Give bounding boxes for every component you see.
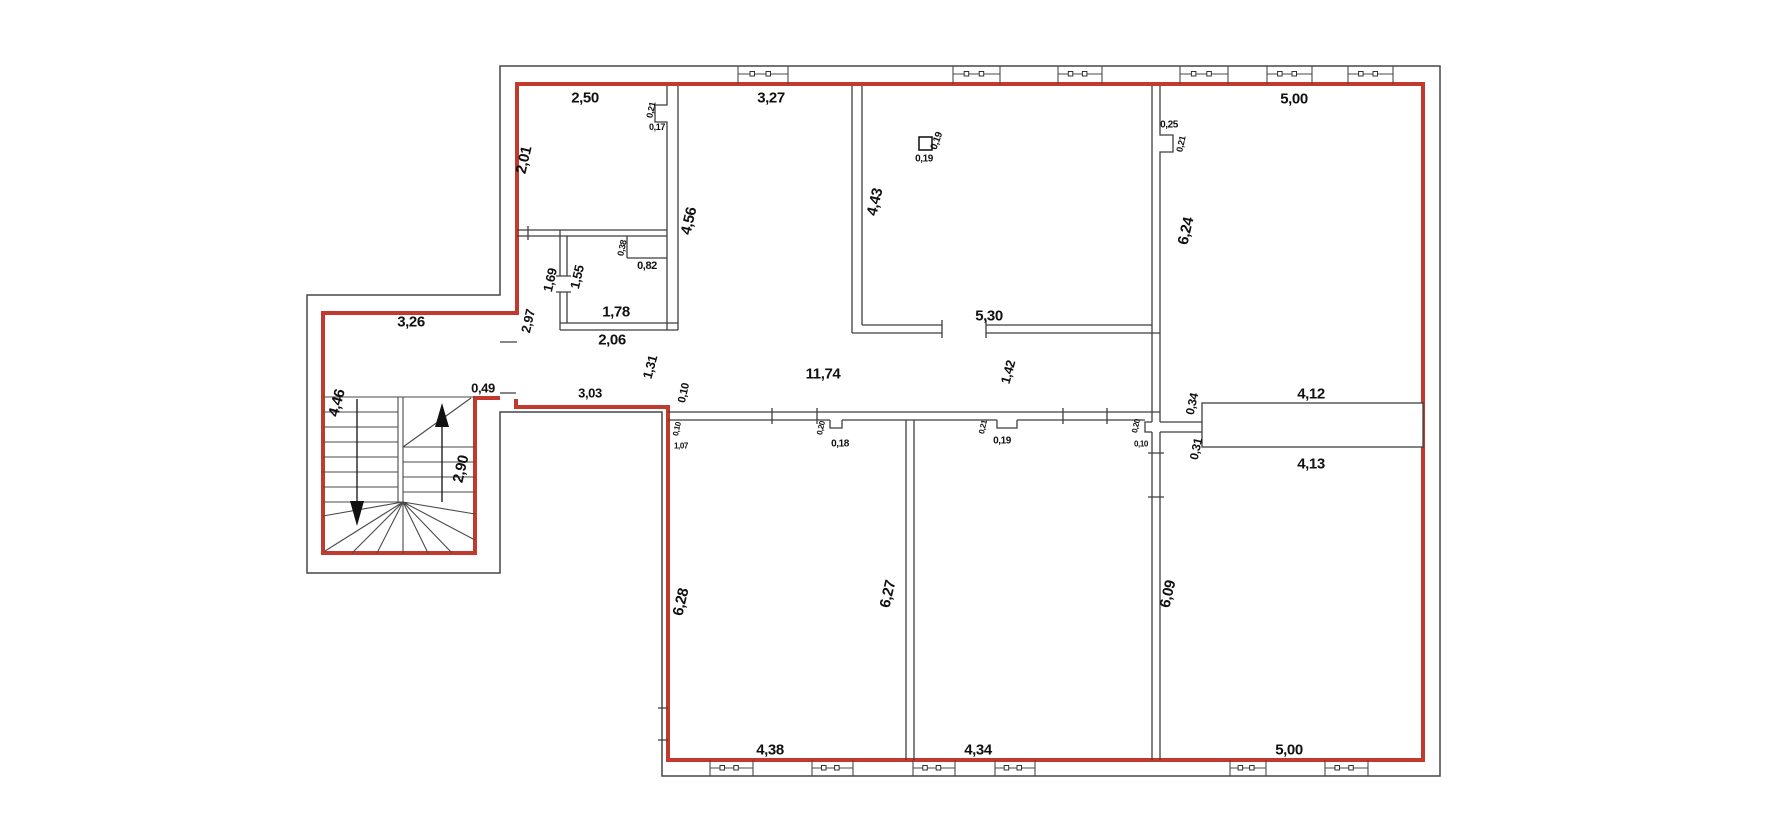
floor-plan-canvas: 2,503,275,002,010,210,174,564,430,190,19… [0,0,1792,828]
dimension-label: 2,97 [518,308,538,335]
dimension-label: 0,10 [1134,440,1149,449]
window-tick [964,72,969,77]
dimension-label: 0,21 [644,101,657,119]
dimension-label: 0,82 [637,260,657,272]
window-tick [1191,72,1196,77]
dimension-label: 0,20 [815,419,827,436]
dimension-label: 0,18 [831,439,850,450]
stair-winder-fan [323,502,475,553]
window-symbol [1267,66,1312,84]
dimension-label: 3,27 [757,90,785,107]
dimension-label: 0,19 [915,154,934,165]
wall-partition-connector [1160,422,1202,432]
dimension-label: 2,06 [598,332,626,349]
window-tick [822,766,827,771]
dimension-label: 4,43 [864,187,887,218]
dimension-label: 2,90 [450,454,473,485]
stair-left-treads [323,412,403,502]
window-symbol [1348,66,1393,84]
window-tick [936,766,941,771]
window-tick [1373,72,1378,77]
dimension-label: 2,50 [571,90,599,107]
window-symbol [1180,66,1228,84]
window-symbol [738,66,788,84]
dimension-label: 4,12 [1297,386,1325,403]
window-tick [1250,766,1255,771]
dimension-label: 1,69 [540,267,560,294]
window-tick [1292,72,1297,77]
dimension-label: 6,28 [670,587,693,618]
dimension-label: 6,24 [1175,215,1198,247]
window-symbol [710,760,753,776]
dimension-label: 0,31 [1187,436,1206,461]
dimension-label: 1,07 [674,442,689,451]
wall-right-interior [1145,86,1173,760]
window-tick [734,766,739,771]
window-symbol [995,760,1035,776]
dimension-label: 0,10 [671,420,683,437]
window-symbol [953,66,1000,84]
dimension-label: 4,46 [325,387,349,418]
dimension-label: 0,17 [649,122,665,132]
entrance-door-lines [500,342,517,393]
floor-plan-page: 2,503,275,002,010,210,174,564,430,190,19… [0,0,1792,828]
dimension-label: 0,10 [676,382,692,404]
dimension-label: 1,31 [640,353,661,380]
window-tick [1068,72,1073,77]
window-tick [1335,766,1340,771]
dimension-label: 0,19 [993,436,1012,447]
window-symbol [913,760,955,776]
dimension-label: 1,78 [602,304,630,321]
window-tick [1004,766,1009,771]
dimension-label: 0,25 [1160,120,1179,131]
dimension-label: 5,30 [975,308,1003,325]
dimension-label: 0,21 [1174,135,1187,153]
dimension-label: 5,00 [1275,742,1303,759]
dimension-label: 4,13 [1297,456,1325,473]
dimension-label: 0,49 [471,381,495,396]
window-tick [1349,766,1354,771]
window-tick [720,766,725,771]
dimension-label: 1,42 [998,358,1019,385]
wall-room1-bottom [517,226,667,240]
dimension-label: 6,27 [877,579,900,610]
dimension-label: 0,21 [977,418,989,435]
window-tick [766,72,771,77]
window-tick [923,766,928,771]
stair-arrow-down-head [350,501,364,526]
window-tick [835,766,840,771]
window-tick [979,72,984,77]
stair-divider [398,397,403,502]
window-tick [1238,766,1243,771]
window-symbol [1058,66,1102,84]
window-tick [1082,72,1087,77]
dimension-label: 0,34 [1183,391,1202,416]
window-tick [750,72,755,77]
dimension-label: 1,55 [567,264,587,291]
dimension-label: 3,26 [397,314,425,331]
window-symbol [1230,760,1266,776]
dimension-label: 4,38 [756,742,784,759]
wall-partition-412 [1202,403,1423,447]
dimension-label: 0,19 [929,130,946,151]
window-symbol [812,760,853,776]
window-tick [1278,72,1283,77]
wall-bottom-rooms-divider [906,420,914,760]
window-tick [1017,766,1022,771]
dimension-label: 3,03 [578,386,602,401]
dimension-label: 11,74 [806,366,842,383]
window-tick [1359,72,1364,77]
window-symbol [1325,760,1368,776]
wall-room2-room3 [852,86,862,333]
dimension-label: 4,34 [964,742,993,759]
dimension-label: 5,00 [1280,91,1308,108]
window-tick [1207,72,1212,77]
dimension-label: 4,56 [678,206,701,237]
wall-530-with-door [852,320,1160,338]
